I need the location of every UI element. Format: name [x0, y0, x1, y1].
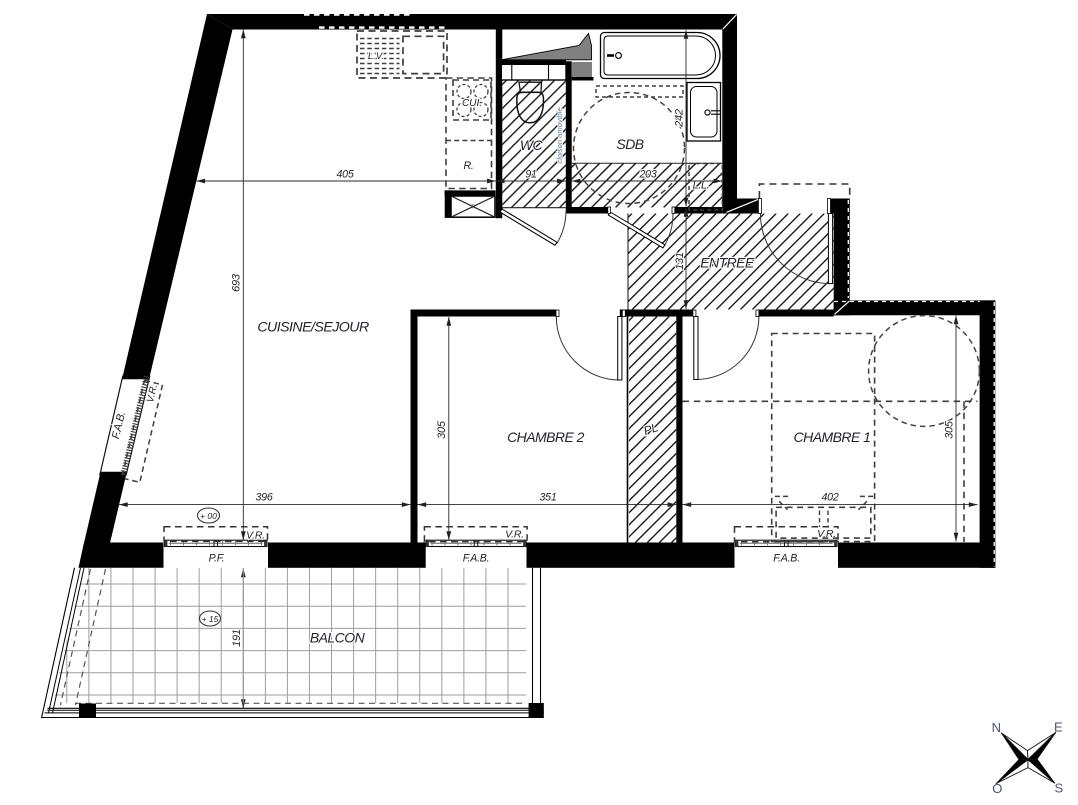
svg-text:242: 242 — [674, 109, 686, 128]
svg-text:305: 305 — [436, 420, 448, 439]
svg-text:131: 131 — [674, 252, 686, 270]
svg-text:CUISINE/SEJOUR: CUISINE/SEJOUR — [257, 320, 369, 336]
svg-text:402: 402 — [822, 492, 839, 504]
svg-text:cloison amovible: cloison amovible — [555, 107, 564, 163]
svg-text:396: 396 — [256, 492, 273, 504]
svg-text:F.A.B.: F.A.B. — [773, 553, 800, 565]
svg-text:203: 203 — [639, 169, 657, 181]
svg-text:305: 305 — [944, 420, 956, 439]
svg-text:WC: WC — [520, 137, 544, 153]
svg-text:E: E — [1054, 720, 1063, 735]
svg-text:O: O — [992, 781, 1002, 796]
svg-text:L.V.: L.V. — [368, 51, 384, 62]
svg-text:693: 693 — [231, 273, 243, 292]
svg-text:V.R.: V.R. — [505, 529, 524, 541]
svg-text:T.: T. — [471, 205, 475, 211]
svg-text:BALCON: BALCON — [310, 630, 366, 646]
svg-text:N: N — [992, 720, 1001, 735]
svg-text:351: 351 — [540, 492, 557, 504]
svg-text:S: S — [1054, 781, 1063, 796]
svg-text:CHAMBRE 1: CHAMBRE 1 — [794, 429, 871, 445]
svg-text:91: 91 — [525, 169, 536, 181]
svg-text:+ 00: + 00 — [200, 511, 217, 521]
svg-text:F.A.B.: F.A.B. — [463, 553, 490, 565]
svg-text:ENTREE: ENTREE — [700, 255, 755, 271]
svg-text:P.F.: P.F. — [209, 553, 225, 565]
svg-text:CUI.: CUI. — [462, 98, 482, 109]
svg-text:V.R.: V.R. — [246, 530, 265, 542]
svg-text:+ 15: + 15 — [202, 614, 219, 624]
svg-text:SDB: SDB — [616, 136, 643, 152]
svg-text:CHAMBRE 2: CHAMBRE 2 — [507, 429, 584, 445]
svg-text:405: 405 — [337, 169, 354, 181]
svg-text:R.: R. — [463, 160, 473, 172]
svg-text:191: 191 — [231, 629, 243, 647]
